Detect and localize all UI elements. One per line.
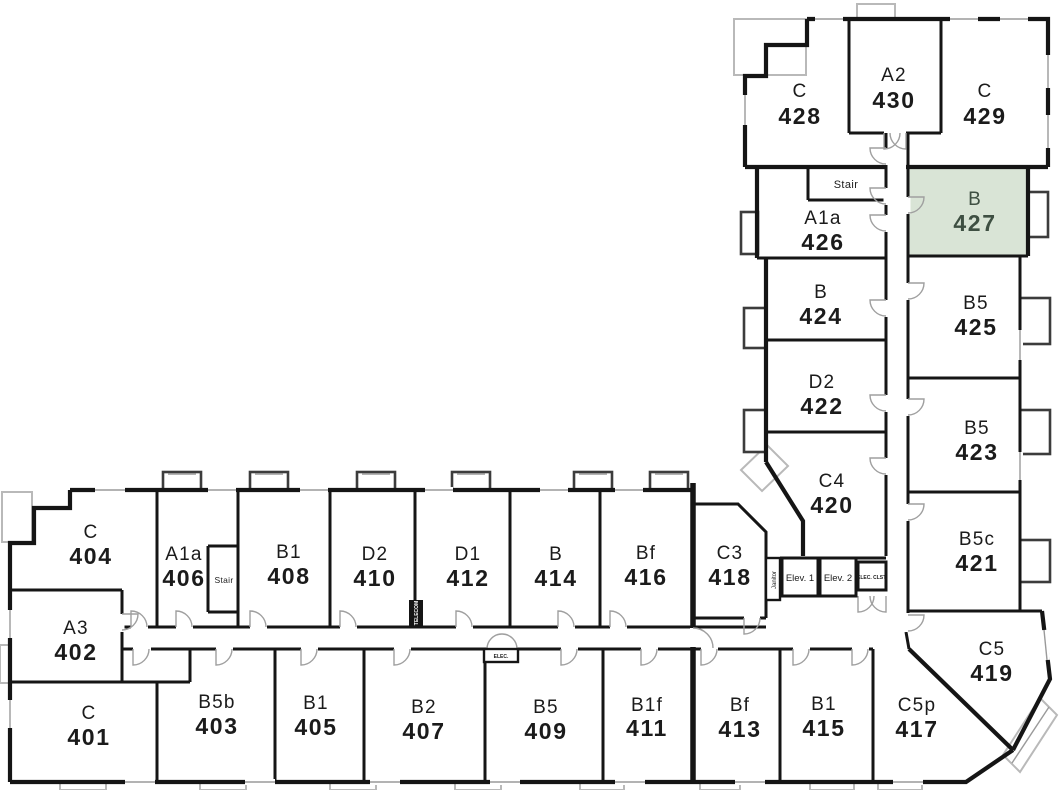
room-422[interactable]: D2422 <box>800 372 843 419</box>
room-403[interactable]: B5b403 <box>195 692 238 739</box>
room-418[interactable]: C3418 <box>708 543 751 590</box>
room-417[interactable]: C5p417 <box>895 695 938 742</box>
svg-text:B5[interactable]: B5 <box>963 293 989 314</box>
svg-text:C[interactable]: C <box>978 81 993 102</box>
svg-text:423[interactable]: 423 <box>955 439 998 465</box>
room-426[interactable]: A1a426 <box>801 208 844 255</box>
svg-text:C[interactable]: C <box>82 703 97 724</box>
balconies <box>0 4 1057 790</box>
svg-text:A2[interactable]: A2 <box>881 65 907 86</box>
room-419[interactable]: C5419 <box>970 639 1013 686</box>
svg-text:421[interactable]: 421 <box>955 550 998 576</box>
svg-text:401[interactable]: 401 <box>67 724 110 750</box>
svg-text:408[interactable]: 408 <box>267 563 310 589</box>
room-420[interactable]: C4420 <box>810 471 853 518</box>
svg-text:419[interactable]: 419 <box>970 660 1013 686</box>
svg-text:D2[interactable]: D2 <box>809 372 836 393</box>
svg-text:406[interactable]: 406 <box>162 565 205 591</box>
svg-text:C[interactable]: C <box>84 522 99 543</box>
svg-text:403[interactable]: 403 <box>195 713 238 739</box>
svg-text:409[interactable]: 409 <box>524 718 567 744</box>
electrical-label: ELEC. <box>494 654 509 660</box>
svg-text:B5[interactable]: B5 <box>533 697 559 718</box>
room-425[interactable]: B5425 <box>954 293 997 340</box>
room-406[interactable]: A1a406 <box>162 544 205 591</box>
room-423[interactable]: B5423 <box>955 418 998 465</box>
svg-text:C5[interactable]: C5 <box>979 639 1006 660</box>
svg-text:B[interactable]: B <box>968 189 982 210</box>
svg-text:B[interactable]: B <box>549 544 563 565</box>
electrical-closet-label: ELEC. CLST. <box>857 575 888 581</box>
svg-text:411[interactable]: 411 <box>626 715 668 741</box>
svg-text:Bf[interactable]: Bf <box>636 543 656 564</box>
svg-text:D1[interactable]: D1 <box>455 544 482 565</box>
svg-text:426[interactable]: 426 <box>801 229 844 255</box>
walls <box>10 19 1050 782</box>
stair-lower-label: Stair <box>215 575 234 585</box>
svg-text:415[interactable]: 415 <box>802 715 845 741</box>
svg-text:A3[interactable]: A3 <box>63 618 89 639</box>
svg-text:B2[interactable]: B2 <box>411 697 437 718</box>
svg-text:D2[interactable]: D2 <box>362 544 389 565</box>
janitor-label: Janitor <box>772 571 778 589</box>
room-402[interactable]: A3402 <box>54 618 97 665</box>
room-411[interactable]: B1f411 <box>626 695 668 741</box>
svg-text:402[interactable]: 402 <box>54 639 97 665</box>
room-430[interactable]: A2430 <box>872 65 915 113</box>
windows <box>10 19 1048 782</box>
telecom-label: TELECOM <box>414 601 420 625</box>
svg-text:404[interactable]: 404 <box>69 543 112 569</box>
svg-text:410[interactable]: 410 <box>353 565 396 591</box>
svg-text:B[interactable]: B <box>814 282 828 303</box>
elevator-2-label: Elev. 2 <box>824 573 852 584</box>
room-404[interactable]: C404 <box>69 522 112 569</box>
svg-text:A1a[interactable]: A1a <box>165 544 202 565</box>
room-421[interactable]: B5c421 <box>955 529 998 576</box>
room-414[interactable]: B414 <box>534 544 577 591</box>
floor-plan-canvas: Stair Stair Elev. 1 Elev. 2 ELEC. CLST. … <box>0 0 1060 790</box>
room-429[interactable]: C429 <box>963 81 1006 129</box>
svg-text:B5b[interactable]: B5b <box>198 692 235 713</box>
svg-text:430[interactable]: 430 <box>872 87 915 113</box>
svg-text:B1[interactable]: B1 <box>303 693 329 714</box>
room-405[interactable]: B1405 <box>294 693 337 740</box>
svg-text:422[interactable]: 422 <box>800 393 843 419</box>
room-416[interactable]: Bf416 <box>624 543 667 590</box>
svg-text:412[interactable]: 412 <box>446 565 489 591</box>
svg-text:413[interactable]: 413 <box>718 716 761 742</box>
svg-text:B5[interactable]: B5 <box>964 418 990 439</box>
svg-text:405[interactable]: 405 <box>294 714 337 740</box>
svg-text:C3[interactable]: C3 <box>717 543 744 564</box>
svg-text:418[interactable]: 418 <box>708 564 751 590</box>
svg-text:B1f[interactable]: B1f <box>631 695 663 716</box>
svg-text:C[interactable]: C <box>793 81 808 102</box>
room-408[interactable]: B1408 <box>267 542 310 589</box>
balcony <box>2 492 32 542</box>
room-424[interactable]: B424 <box>799 282 842 329</box>
room-413[interactable]: Bf413 <box>718 695 761 742</box>
room-415[interactable]: B1415 <box>802 694 845 741</box>
svg-text:B5c[interactable]: B5c <box>959 529 995 550</box>
svg-text:B1[interactable]: B1 <box>276 542 302 563</box>
svg-text:428[interactable]: 428 <box>778 103 821 129</box>
svg-text:416[interactable]: 416 <box>624 564 667 590</box>
svg-text:C5p[interactable]: C5p <box>898 695 936 716</box>
room-428[interactable]: C428 <box>778 81 821 129</box>
svg-text:420[interactable]: 420 <box>810 492 853 518</box>
svg-text:414[interactable]: 414 <box>534 565 577 591</box>
svg-text:424[interactable]: 424 <box>799 303 842 329</box>
svg-text:429[interactable]: 429 <box>963 103 1006 129</box>
svg-text:B1[interactable]: B1 <box>811 694 837 715</box>
room-409[interactable]: B5409 <box>524 697 567 744</box>
room-410[interactable]: D2410 <box>353 544 396 591</box>
svg-text:425[interactable]: 425 <box>954 314 997 340</box>
svg-text:417[interactable]: 417 <box>895 716 938 742</box>
room-407[interactable]: B2407 <box>402 697 445 744</box>
svg-text:427[interactable]: 427 <box>953 210 996 236</box>
svg-text:A1a[interactable]: A1a <box>804 208 841 229</box>
floor-plan: Stair Stair Elev. 1 Elev. 2 ELEC. CLST. … <box>0 0 1060 790</box>
svg-text:Bf[interactable]: Bf <box>730 695 750 716</box>
room-401[interactable]: C401 <box>67 703 110 750</box>
svg-text:407[interactable]: 407 <box>402 718 445 744</box>
elevator-1-label: Elev. 1 <box>786 573 814 584</box>
room-412[interactable]: D1412 <box>446 544 489 591</box>
stair-upper-label: Stair <box>834 179 859 191</box>
svg-text:C4[interactable]: C4 <box>819 471 846 492</box>
